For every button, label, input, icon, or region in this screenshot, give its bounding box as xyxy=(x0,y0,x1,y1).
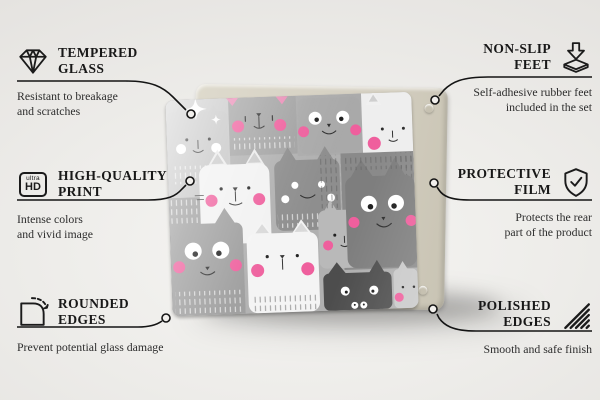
feature-tempered-glass: TEMPERED GLASS Resistant to breakage and… xyxy=(17,42,232,118)
rubber-feet-icon xyxy=(560,41,592,73)
feature-polished-edges: POLISHED EDGES Smooth and safe finish xyxy=(362,295,592,357)
feature-protective-film: PROTECTIVE FILM Protects the rear part o… xyxy=(362,163,592,239)
feature-description: Prevent potential glass damage xyxy=(17,340,232,355)
feature-description: Protects the rear part of the product xyxy=(362,210,592,239)
ultra-hd-icon: ultra HD xyxy=(17,168,49,200)
hatched-edges-icon xyxy=(560,298,592,330)
feature-rounded-edges: ROUNDED EDGES Prevent potential glass da… xyxy=(17,293,232,355)
feature-description: Smooth and safe finish xyxy=(362,342,592,357)
feature-title: HIGH-QUALITY PRINT xyxy=(58,168,167,200)
feature-title: PROTECTIVE FILM xyxy=(458,166,551,198)
feature-description: Intense colors and vivid image xyxy=(17,212,232,241)
diamond-icon xyxy=(17,45,49,77)
feature-description: Resistant to breakage and scratches xyxy=(17,89,232,118)
shield-check-icon xyxy=(560,166,592,198)
feature-title: ROUNDED EDGES xyxy=(58,296,129,328)
feature-high-quality-print: ultra HD HIGH-QUALITY PRINT Intense colo… xyxy=(17,165,232,241)
product-infographic: TEMPERED GLASS Resistant to breakage and… xyxy=(0,0,600,400)
rubber-foot xyxy=(418,286,427,295)
feature-title: POLISHED EDGES xyxy=(478,298,551,330)
feature-description: Self-adhesive rubber feet included in th… xyxy=(362,85,592,114)
feature-title: TEMPERED GLASS xyxy=(58,45,138,77)
rounded-corner-icon xyxy=(17,296,49,328)
feature-title: NON-SLIP FEET xyxy=(483,41,551,73)
feature-non-slip-feet: NON-SLIP FEET Self-adhesive rubber feet … xyxy=(362,38,592,114)
